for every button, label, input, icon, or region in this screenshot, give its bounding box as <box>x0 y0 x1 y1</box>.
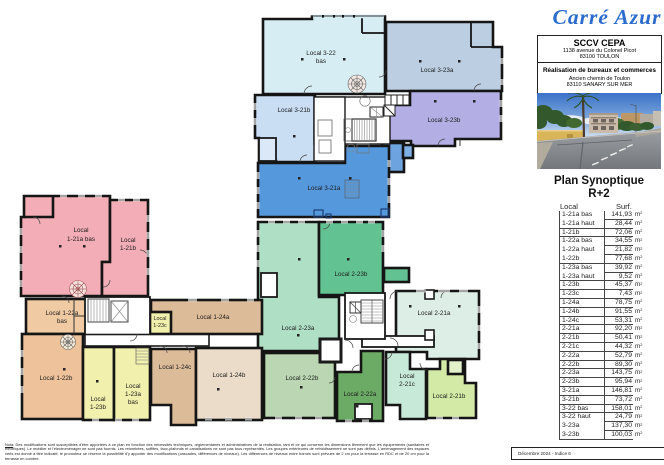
svg-text:Local 3-21b: Local 3-21b <box>278 107 311 114</box>
svg-text:Local 3-22: Local 3-22 <box>306 50 336 57</box>
svg-text:Local: Local <box>399 373 414 380</box>
svg-text:Local 1-22a: Local 1-22a <box>46 310 79 317</box>
svg-text:Local 1-22b: Local 1-22b <box>40 375 73 382</box>
svg-text:Local 3-23a: Local 3-23a <box>421 67 454 74</box>
svg-text:2-21c: 2-21c <box>399 381 415 388</box>
svg-text:Local 3-23b: Local 3-23b <box>428 117 461 124</box>
svg-text:Local 2-23b: Local 2-23b <box>335 271 368 278</box>
svg-text:Local: Local <box>90 396 105 403</box>
svg-text:Local: Local <box>125 383 140 390</box>
svg-text:1-23b: 1-23b <box>90 404 107 411</box>
svg-text:bas: bas <box>316 58 326 65</box>
svg-text:Local: Local <box>154 316 167 322</box>
svg-text:Local: Local <box>73 227 88 234</box>
svg-text:Local 2-22b: Local 2-22b <box>286 375 319 382</box>
svg-text:Local 2-23a: Local 2-23a <box>282 325 315 332</box>
svg-text:Local 2-21b: Local 2-21b <box>433 393 466 400</box>
svg-text:Local 1-24a: Local 1-24a <box>197 314 230 321</box>
svg-text:Local 2-22a: Local 2-22a <box>344 391 377 398</box>
svg-text:Local 1-24b: Local 1-24b <box>213 372 246 379</box>
svg-text:Local 3-21a: Local 3-21a <box>308 185 341 192</box>
svg-text:bas: bas <box>128 399 138 406</box>
svg-text:1-23a: 1-23a <box>125 391 142 398</box>
svg-text:1-21b: 1-21b <box>120 245 137 252</box>
svg-text:Local: Local <box>120 237 135 244</box>
svg-text:bas: bas <box>57 318 67 325</box>
svg-text:1-21a bas: 1-21a bas <box>67 236 95 243</box>
svg-text:Local 1-24c: Local 1-24c <box>159 364 192 371</box>
svg-text:1-23c: 1-23c <box>153 323 167 329</box>
svg-text:Local 2-21a: Local 2-21a <box>418 310 451 317</box>
